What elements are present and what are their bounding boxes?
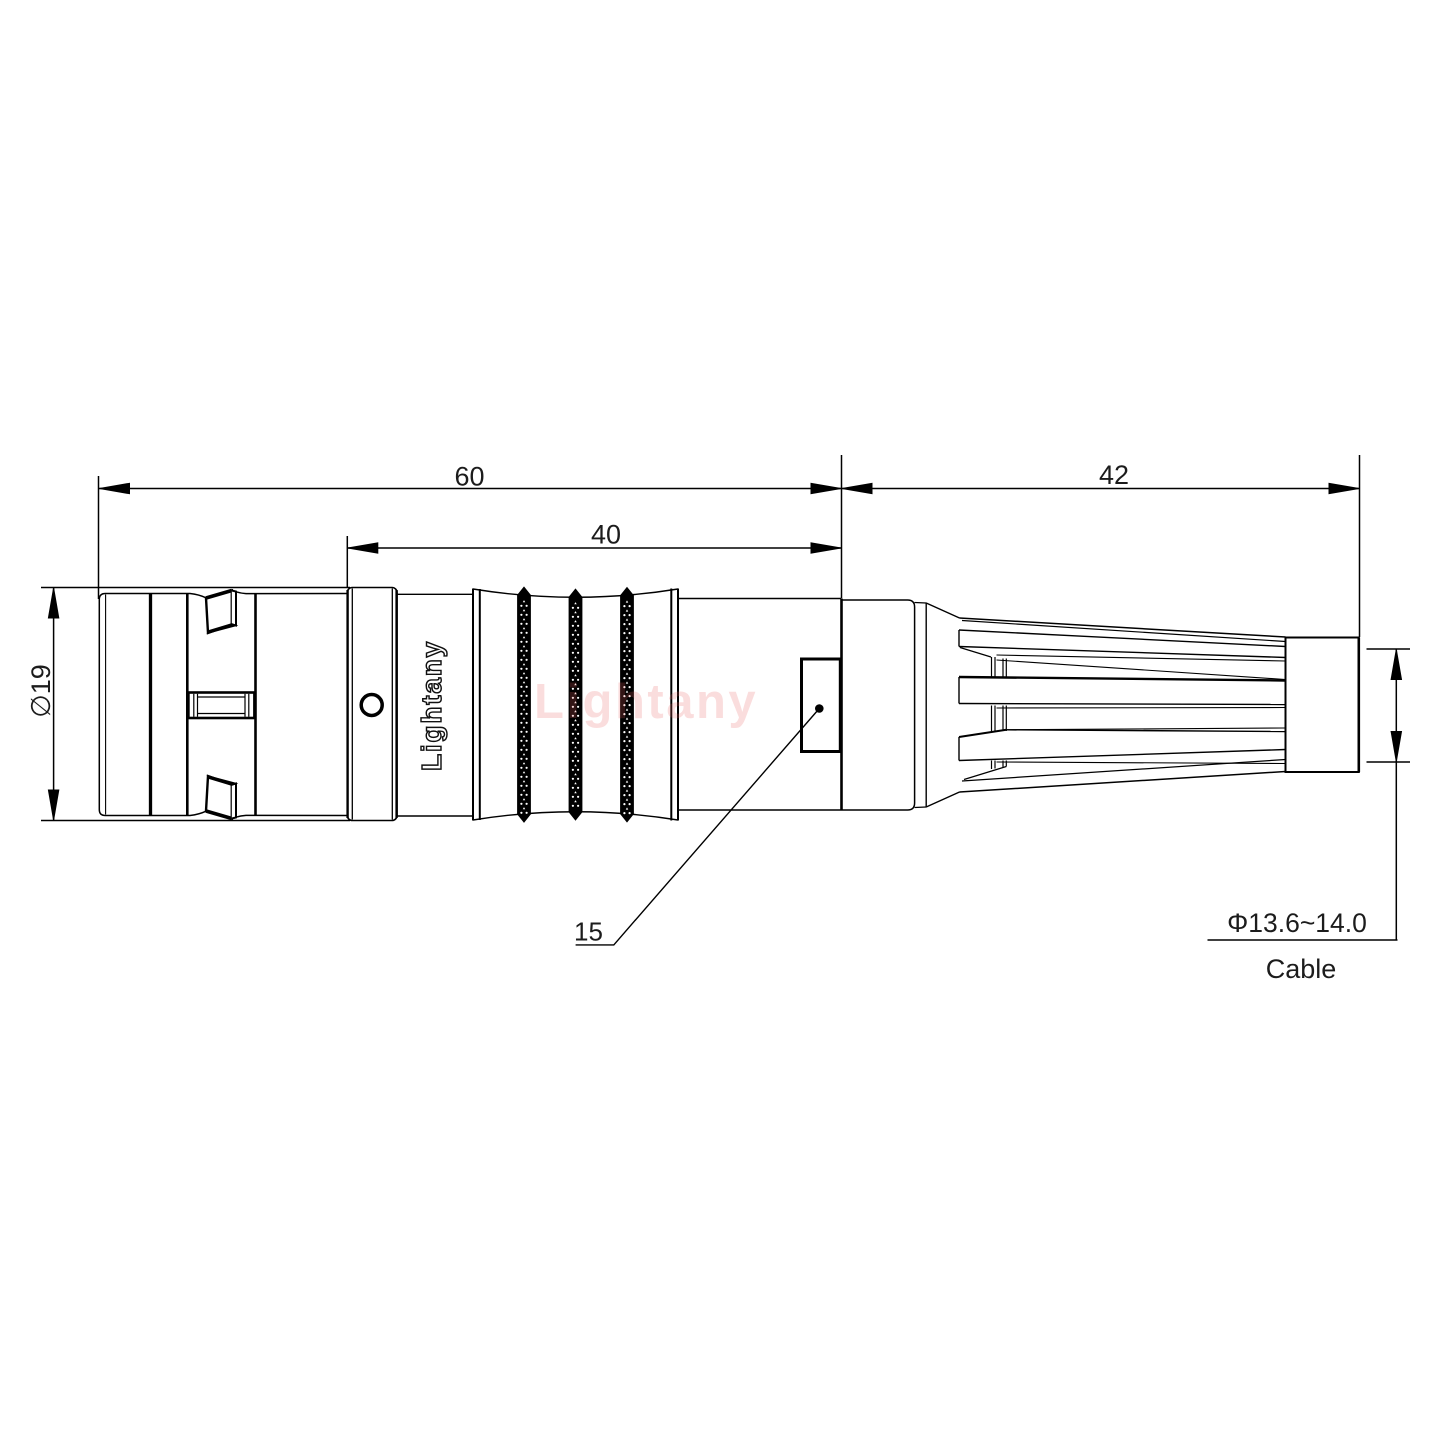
svg-text:15: 15: [574, 917, 603, 947]
svg-text:60: 60: [454, 462, 484, 492]
svg-text:42: 42: [1099, 460, 1129, 490]
svg-text:∅19: ∅19: [26, 664, 56, 718]
svg-text:Φ13.6~14.0: Φ13.6~14.0: [1227, 908, 1367, 938]
svg-text:Lightany: Lightany: [534, 675, 758, 729]
svg-text:Lightany: Lightany: [416, 640, 447, 771]
svg-text:Cable: Cable: [1266, 954, 1337, 984]
svg-text:40: 40: [591, 520, 621, 550]
